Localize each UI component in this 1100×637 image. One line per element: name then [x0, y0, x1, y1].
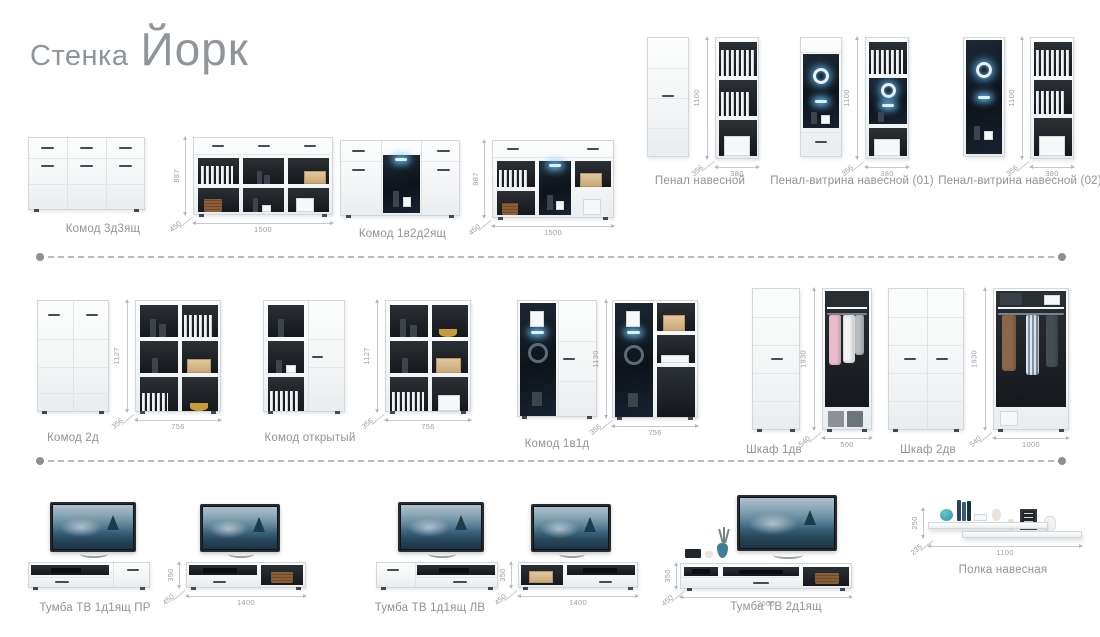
shelf-cell: [288, 158, 329, 184]
depth-value: 450: [168, 219, 183, 234]
panel-seam: [648, 68, 688, 69]
clothing-item: [829, 315, 841, 365]
soundbar-decor: [739, 570, 783, 574]
shelf: [827, 307, 867, 309]
book-decor: [967, 501, 971, 521]
foot: [790, 429, 795, 432]
tv-stand: [773, 551, 803, 559]
product-name: Пенал навесной: [635, 175, 765, 187]
foot: [893, 429, 898, 432]
width-value: 1500: [254, 225, 272, 234]
height-dimension: 1130: [599, 300, 609, 418]
product-name: Комод 1в1д: [517, 438, 597, 450]
shelf-cell: [140, 305, 178, 337]
depth-value: 356: [588, 422, 603, 437]
box-decor: [984, 131, 993, 140]
height-value: 250: [910, 516, 919, 529]
product-penal: 1100 380 356 Пенал навесной: [645, 35, 775, 190]
drawer-seam: [29, 577, 111, 578]
box-decor: [286, 365, 296, 373]
open-view: [1030, 37, 1074, 159]
drawer-handle: [507, 148, 519, 150]
foot: [191, 587, 196, 590]
door-handle: [312, 356, 323, 358]
foot: [523, 587, 528, 590]
product-name: Комод 1в2д2ящ: [340, 228, 465, 240]
bottle-decor: [393, 191, 399, 207]
foot: [998, 429, 1003, 432]
shelf-cell: [140, 341, 178, 373]
led-light: [978, 96, 990, 99]
door-handle: [563, 358, 575, 360]
shelf-cell: [497, 161, 535, 187]
shelf-cell: [390, 341, 428, 373]
glass-panel: [383, 155, 420, 213]
books-decor: [184, 315, 214, 337]
cabinet-front: [340, 140, 460, 216]
product-shkaf-2dv: 1930 1000 540 Шкаф 2дв: [888, 286, 1073, 458]
width-dimension: 1500: [193, 221, 333, 233]
foot: [211, 411, 216, 414]
door-handle: [127, 569, 139, 571]
product-penal-vitrina-02: 1100 380 356 Пенал-витрина навесной (02): [945, 35, 1095, 190]
product-tumba-tv-pr: 350 1400 450 Тумба ТВ 1д1ящ ПР: [28, 492, 313, 622]
product-name: Полка навесная: [908, 564, 1098, 576]
door-handle: [41, 165, 54, 167]
height-dimension: 350: [669, 563, 679, 589]
shelf-cell: [719, 120, 757, 156]
panel-seam: [38, 339, 108, 340]
bottle-decor: [276, 360, 282, 373]
panel-seam: [558, 381, 596, 382]
dimension-line: [492, 226, 614, 227]
led-light: [882, 104, 894, 107]
cabinet-front: [888, 288, 964, 430]
width-dimension: 756: [612, 424, 698, 436]
depth-dimension: 356: [363, 414, 385, 430]
height-value: 1930: [799, 350, 808, 368]
door-seam: [73, 301, 74, 411]
height-dimension: 1127: [370, 300, 380, 412]
width-dimension: 1000: [993, 436, 1069, 448]
cup-decor: [705, 551, 713, 558]
dimension-line: [865, 167, 909, 168]
tv-stand: [228, 550, 254, 558]
height-dimension: 1100: [1015, 37, 1025, 159]
shelf-cell: [182, 377, 218, 411]
box-decor: [580, 173, 602, 187]
tree-silhouette: [804, 510, 816, 525]
dimension-line: [186, 596, 306, 597]
product-name: Тумба ТВ 1д1ящ ЛВ: [335, 602, 525, 614]
depth-value: 450: [467, 222, 482, 237]
glass-panel: [539, 161, 571, 215]
tv: [398, 502, 484, 552]
bottle-decor: [410, 325, 417, 337]
dimension-line: [676, 563, 677, 589]
box-decor: [661, 355, 689, 363]
panel-seam: [29, 184, 144, 185]
box-decor: [583, 199, 601, 215]
height-value: 887: [172, 169, 181, 182]
shelf-cell: [243, 158, 284, 184]
cabinet-front: [376, 562, 498, 588]
drawer-handle: [41, 147, 54, 149]
cabinet-front: [647, 37, 689, 157]
page-title: Стенка Йорк: [30, 22, 249, 76]
foot: [199, 214, 204, 217]
box-decor: [262, 205, 271, 212]
title-prefix: Стенка: [30, 40, 129, 73]
width-value: 1500: [544, 228, 562, 237]
bottle-decor: [547, 195, 553, 210]
height-value: 887: [471, 172, 480, 185]
vase-decor: [992, 509, 1001, 521]
width-dimension: 756: [385, 418, 471, 430]
shelf-cell: [869, 42, 907, 74]
books-decor: [270, 391, 298, 411]
panel-seam: [753, 345, 799, 346]
shelf: [998, 307, 1064, 309]
shelf-cell: [182, 305, 218, 337]
open-view: [135, 300, 221, 412]
product-komod-1v2d2: 887 1500 450 Комод 1в2д2ящ: [340, 140, 625, 240]
tv-stand: [559, 550, 585, 558]
depth-value: 235: [909, 542, 924, 557]
shelf-cell: [268, 341, 304, 373]
dimension-line: [511, 562, 512, 588]
panel-seam: [753, 401, 799, 402]
shelf-cell: [657, 303, 695, 331]
av-receiver: [692, 569, 710, 574]
door-seam: [308, 301, 309, 411]
box-decor: [663, 315, 685, 331]
basket-decor: [815, 573, 839, 584]
led-light: [549, 164, 561, 167]
open-view: [492, 140, 614, 218]
foot: [617, 417, 622, 420]
basket-decor: [502, 203, 518, 215]
box-decor: [1044, 295, 1060, 305]
width-value: 1100: [996, 548, 1013, 557]
drawer-handle: [587, 148, 599, 150]
open-view: [385, 300, 471, 412]
shelf-cell: [432, 341, 468, 373]
tree-silhouette: [584, 517, 596, 532]
drawer-handle: [55, 581, 69, 583]
shelf-cell: [288, 188, 329, 212]
open-slot: [261, 565, 303, 585]
books-decor: [1036, 50, 1069, 76]
cabinet-front: [263, 300, 345, 412]
cabinet-front: [28, 137, 145, 210]
books-decor: [499, 170, 529, 187]
panel-seam: [753, 317, 799, 318]
shelf-cell: [657, 335, 695, 363]
bottle-decor: [811, 112, 817, 124]
tv: [50, 502, 136, 552]
storage-box: [1000, 411, 1018, 426]
open-slot: [31, 565, 109, 575]
foot: [134, 209, 139, 212]
open-slot: [189, 565, 257, 575]
shelf-cell: [198, 158, 239, 184]
clothing-item: [1026, 315, 1039, 375]
door-handle: [662, 95, 674, 97]
product-name: Тумба ТВ 1д1ящ ПР: [0, 602, 190, 614]
led-light: [815, 100, 827, 103]
product-tumba-tv-lv: 350 1400 450 Тумба ТВ 1д1ящ ЛВ: [373, 492, 658, 622]
tv-stand: [428, 550, 456, 558]
drawer-handle: [258, 145, 270, 147]
cabinet-front: [28, 562, 150, 588]
height-dimension: 887: [477, 140, 487, 218]
dimension-line: [715, 167, 759, 168]
box-decor: [530, 311, 544, 327]
product-name: Тумба ТВ 2д1ящ: [681, 601, 871, 613]
height-dimension: 1930: [978, 288, 988, 430]
drawer-seam: [29, 158, 144, 159]
cabinet-front: [800, 37, 842, 157]
led-ring: [881, 83, 896, 98]
bottle-decor: [878, 112, 884, 122]
panel-seam: [801, 52, 841, 53]
open-view: [993, 288, 1069, 430]
open-view: [612, 300, 698, 418]
box-decor: [874, 139, 900, 156]
shelf-cell: [268, 305, 304, 337]
foot: [42, 411, 47, 414]
foot: [322, 214, 327, 217]
door-handle: [771, 358, 783, 360]
foot: [296, 587, 301, 590]
foot: [346, 215, 351, 218]
width-dimension: 1500: [492, 224, 614, 236]
dimension-line: [707, 37, 708, 159]
depth-dimension: 540: [971, 432, 993, 448]
drawer-handle: [213, 581, 226, 583]
dimension-line: [680, 597, 852, 598]
foot: [140, 587, 145, 590]
bowl-decor: [190, 403, 208, 411]
glass-panel: [803, 54, 839, 128]
height-value: 350: [166, 568, 175, 581]
open-slot: [684, 567, 718, 576]
open-slot: [521, 565, 563, 585]
shelf-cell: [575, 161, 611, 187]
foot: [140, 411, 145, 414]
product-tumba-tv-2d1: 350 2000 450 Тумба ТВ 2д1ящ: [675, 487, 890, 622]
foot: [99, 411, 104, 414]
bottle-decor: [257, 171, 262, 184]
drawer-handle: [753, 582, 769, 584]
tv: [200, 504, 280, 552]
product-name: Пенал-витрина навесной (02): [920, 175, 1100, 187]
section-divider: [38, 256, 1064, 258]
clothing-item: [843, 315, 855, 363]
dimension-line: [385, 420, 471, 421]
clothing-item: [1046, 315, 1058, 367]
box-decor: [436, 358, 461, 373]
led-ring: [813, 68, 829, 84]
drawer-handle: [80, 147, 93, 149]
door-handle: [352, 169, 365, 171]
height-dimension: 350: [504, 562, 514, 588]
foot: [862, 429, 867, 432]
open-view: [822, 288, 872, 430]
tv: [737, 495, 837, 551]
dimension-line: [814, 288, 815, 430]
drawer-handle: [304, 145, 316, 147]
open-view: [518, 562, 638, 588]
cabinet-front: [37, 300, 109, 412]
shelf-cell: [497, 191, 535, 215]
dimension-line: [606, 300, 607, 418]
panel-seam: [38, 393, 108, 394]
storage-box: [847, 411, 863, 427]
bottle-decor: [974, 126, 980, 140]
wardrobe-interior: [825, 291, 869, 407]
width-value: 500: [840, 440, 853, 449]
box-decor: [626, 311, 640, 327]
width-dimension: 500: [822, 436, 872, 448]
height-value: 1100: [692, 89, 701, 106]
foot: [687, 588, 692, 591]
shelf-cell: [390, 305, 428, 337]
height-value: 1127: [362, 347, 371, 364]
width-dimension: 1400: [518, 594, 638, 606]
foot: [628, 587, 633, 590]
book-stack-decor: [974, 514, 987, 521]
glass-panel: [520, 303, 556, 416]
books-decor: [721, 50, 754, 76]
product-name: Комод 3д3ящ: [38, 223, 168, 235]
av-receiver: [51, 568, 81, 573]
open-slot: [567, 565, 635, 575]
shelf-cell: [390, 377, 428, 411]
shelf-upper: [928, 522, 1048, 529]
foot: [827, 429, 832, 432]
depth-dimension: 356: [591, 420, 613, 436]
width-value: 756: [421, 422, 434, 431]
shelf-cell: [657, 367, 695, 417]
dimension-line: [928, 546, 1082, 547]
cabinet-front: [517, 300, 597, 417]
box-decor: [304, 171, 326, 184]
shelf-cell: [432, 377, 468, 411]
shelf-cell: [1034, 118, 1072, 156]
glass-panel: [615, 303, 653, 417]
door-handle: [904, 358, 916, 360]
books-decor: [721, 92, 749, 116]
panel-seam: [801, 132, 841, 133]
round-vessel: [528, 343, 548, 363]
panel-seam: [889, 317, 963, 318]
width-dimension: 756: [135, 418, 221, 430]
tree-silhouette: [253, 517, 265, 532]
panel-seam: [889, 401, 963, 402]
basket-decor: [271, 572, 293, 583]
books-decor: [201, 166, 233, 184]
tree-silhouette: [455, 515, 467, 530]
panel-seam: [753, 373, 799, 374]
section-divider: [38, 460, 1064, 462]
panel-seam: [889, 345, 963, 346]
books-decor: [1036, 91, 1064, 114]
foot: [603, 217, 608, 220]
product-name: Шкаф 2дв: [890, 444, 966, 456]
dimension-line: [1030, 167, 1074, 168]
door-seam: [421, 141, 422, 215]
drawer-seam: [415, 577, 497, 578]
depth-value: 450: [660, 593, 675, 608]
dimension-line: [985, 288, 986, 430]
foot: [498, 217, 503, 220]
led-light: [395, 158, 407, 161]
bottle-decor: [278, 319, 284, 337]
product-komod-3d3: 887 1500 450 Комод 3д3ящ: [28, 137, 333, 237]
depth-value: 540: [968, 434, 983, 449]
basket-decor: [204, 199, 222, 212]
led-ring: [976, 62, 992, 78]
dimension-line: [484, 140, 485, 218]
door-seam: [415, 563, 416, 587]
shelf-cell: [182, 341, 218, 373]
height-value: 1127: [112, 347, 121, 364]
foot: [757, 429, 762, 432]
shelf-cell: [432, 305, 468, 337]
book-decor: [957, 500, 961, 521]
height-dimension: 250: [916, 508, 926, 538]
door-handle: [119, 165, 132, 167]
width-value: 1400: [569, 598, 587, 607]
drawer-handle: [352, 150, 365, 152]
door-handle: [86, 314, 98, 316]
depth-value: 356: [360, 416, 375, 431]
width-dimension: 1100: [928, 544, 1082, 556]
tv-screen: [401, 505, 481, 549]
foot: [1059, 429, 1064, 432]
cabinet-front: [752, 288, 800, 430]
product-shkaf-1dv: 1930 500 540 Шкаф 1дв: [752, 286, 880, 458]
product-name: Комод открытый: [255, 432, 365, 444]
foot: [390, 411, 395, 414]
panel-seam: [308, 339, 344, 340]
door-seam: [927, 289, 928, 429]
panel-seam: [648, 98, 688, 99]
width-value: 1000: [1022, 440, 1040, 449]
dimension-line: [822, 438, 872, 439]
product-name: Комод 2д: [37, 432, 109, 444]
drawer-handle: [815, 141, 827, 143]
bottle-decor: [253, 198, 258, 212]
cabinet-front: [963, 37, 1005, 157]
round-vessel: [624, 345, 644, 365]
depth-dimension: 450: [470, 220, 492, 236]
led-light: [627, 331, 640, 334]
tv-screen: [53, 505, 133, 549]
shelf-cell: [140, 377, 178, 411]
foot: [954, 429, 959, 432]
bottle-decor: [532, 392, 542, 406]
av-receiver: [439, 568, 469, 573]
product-polka: 250 1100 235 Полка навесная: [920, 478, 1095, 598]
storage-box: [828, 411, 844, 427]
width-value: 1400: [237, 598, 255, 607]
bottle-decor: [400, 319, 406, 337]
shelf-cell: [268, 377, 304, 411]
height-value: 1100: [842, 89, 851, 106]
